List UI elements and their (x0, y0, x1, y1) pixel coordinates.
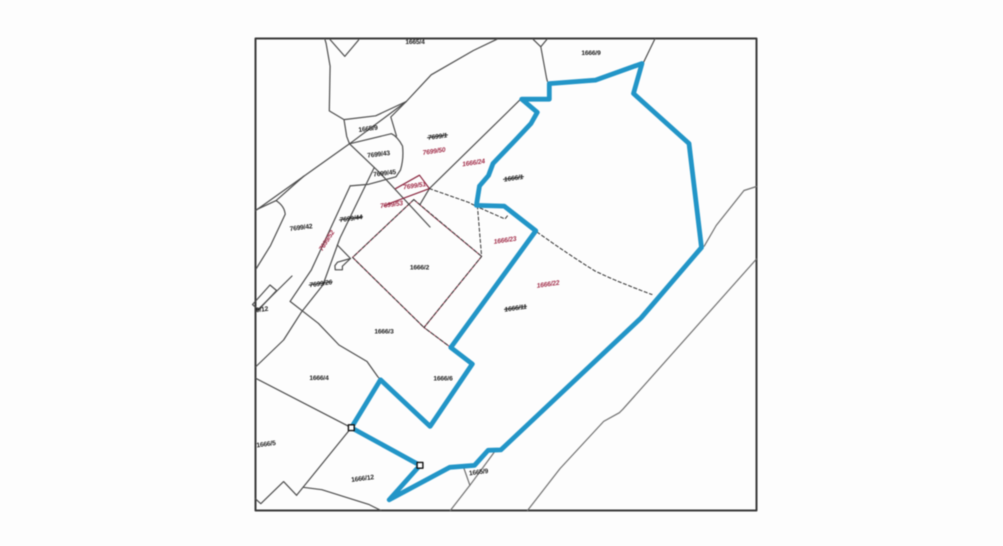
svg-text:1666/23: 1666/23 (493, 236, 517, 246)
svg-text:1665/9: 1665/9 (358, 125, 378, 134)
svg-text:7699/50: 7699/50 (422, 147, 446, 157)
svg-text:7699/43: 7699/43 (367, 150, 391, 160)
svg-text:1666/22: 1666/22 (536, 280, 560, 290)
svg-text:1666/12: 1666/12 (351, 474, 375, 484)
svg-text:7699/42: 7699/42 (289, 223, 313, 233)
svg-text:7699/53: 7699/53 (380, 200, 404, 210)
svg-text:1665/4: 1665/4 (405, 39, 425, 46)
svg-text:1666/24: 1666/24 (462, 158, 486, 168)
svg-text:1665/9: 1665/9 (469, 468, 489, 477)
svg-text:1666/3: 1666/3 (374, 328, 394, 335)
svg-text:9/12: 9/12 (256, 306, 269, 314)
svg-text:1666/9: 1666/9 (581, 50, 601, 57)
svg-text:1666/5: 1666/5 (256, 440, 276, 449)
svg-text:1666/6: 1666/6 (433, 375, 453, 382)
svg-text:1666/2: 1666/2 (410, 264, 430, 271)
svg-text:7699/52: 7699/52 (318, 229, 337, 252)
svg-text:1666/4: 1666/4 (309, 375, 329, 382)
